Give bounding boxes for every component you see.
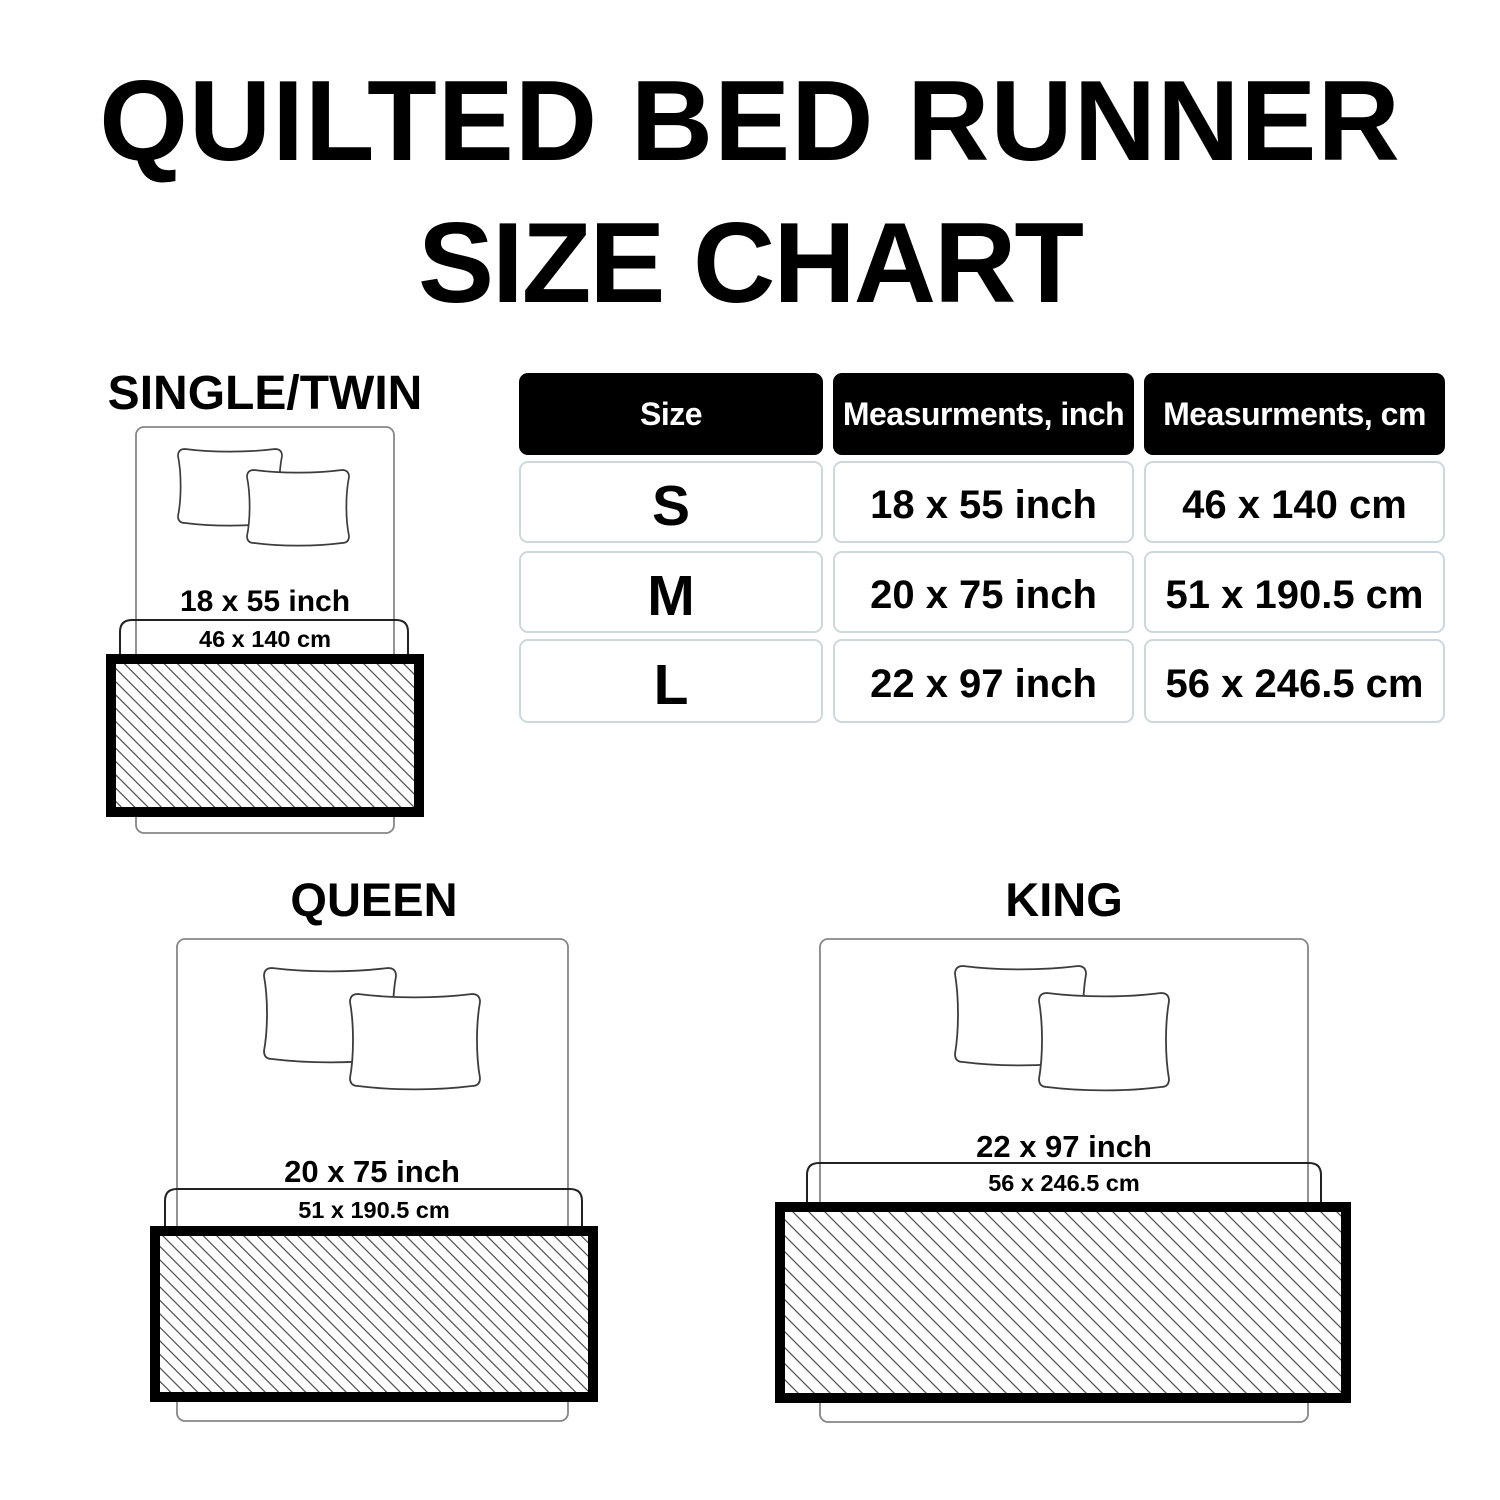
svg-text:22 x 97 inch: 22 x 97 inch	[976, 1129, 1152, 1164]
svg-text:20 x 75 inch: 20 x 75 inch	[284, 1154, 460, 1189]
svg-text:56 x 246.5 cm: 56 x 246.5 cm	[988, 1170, 1140, 1196]
svg-text:51 x 190.5 cm: 51 x 190.5 cm	[298, 1197, 450, 1223]
svg-text:18 x 55 inch: 18 x 55 inch	[180, 585, 350, 618]
svg-text:46 x 140 cm: 46 x 140 cm	[199, 626, 331, 652]
